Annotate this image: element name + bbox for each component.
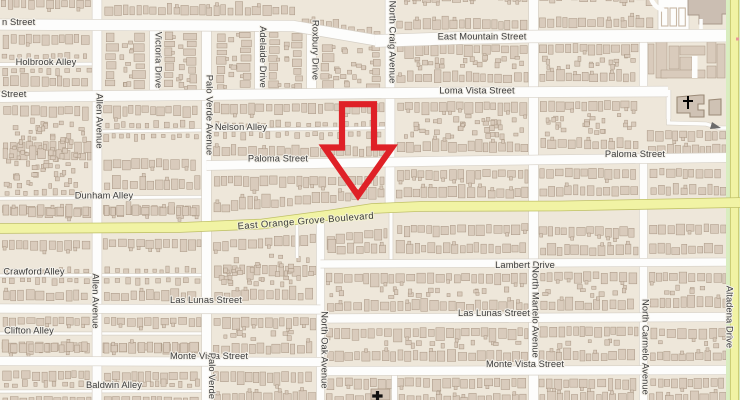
svg-text:Allen Avenue: Allen Avenue — [95, 93, 105, 148]
svg-text:North Carmelo Avenue: North Carmelo Avenue — [641, 299, 651, 395]
svg-text:Monte Vista Street: Monte Vista Street — [486, 359, 564, 369]
svg-text:Adelaide Drive: Adelaide Drive — [258, 26, 268, 88]
svg-text:Roxbury Drive: Roxbury Drive — [311, 20, 321, 80]
svg-text:North Martelo Avenue: North Martelo Avenue — [531, 266, 541, 358]
svg-text:Holbrook Alley: Holbrook Alley — [16, 57, 77, 67]
svg-text:Las Lunas Street: Las Lunas Street — [170, 295, 242, 305]
svg-text:Lambert Drive: Lambert Drive — [495, 260, 555, 270]
svg-text:Street: Street — [1, 89, 27, 99]
svg-text:Baldwin Alley: Baldwin Alley — [86, 380, 142, 390]
svg-text:Victoria Drive: Victoria Drive — [154, 32, 164, 89]
svg-text:Paloma Street: Paloma Street — [605, 149, 666, 159]
svg-text:Loma Vista Street: Loma Vista Street — [439, 86, 515, 96]
svg-text:Crawford Alley: Crawford Alley — [3, 267, 65, 277]
svg-text:Altadena Drive: Altadena Drive — [725, 286, 735, 348]
svg-text:Paloma Street: Paloma Street — [248, 154, 309, 164]
svg-text:Nelson Alley: Nelson Alley — [215, 122, 268, 132]
svg-text:Las Lunas Street: Las Lunas Street — [458, 308, 530, 318]
svg-text:North Craig Avenue: North Craig Avenue — [388, 1, 398, 84]
svg-text:Dunham Alley: Dunham Alley — [75, 191, 134, 201]
svg-text:Palo Verde Avenue: Palo Verde Avenue — [207, 353, 217, 400]
svg-text:Allen Avenue: Allen Avenue — [91, 273, 101, 328]
svg-text:East Mountain Street: East Mountain Street — [438, 32, 527, 42]
svg-text:Clifton Alley: Clifton Alley — [4, 326, 54, 336]
svg-text:Palo Verde Avenue: Palo Verde Avenue — [205, 75, 215, 156]
svg-text:North Oak Avenue: North Oak Avenue — [320, 311, 330, 388]
svg-text:n Street: n Street — [2, 17, 36, 27]
